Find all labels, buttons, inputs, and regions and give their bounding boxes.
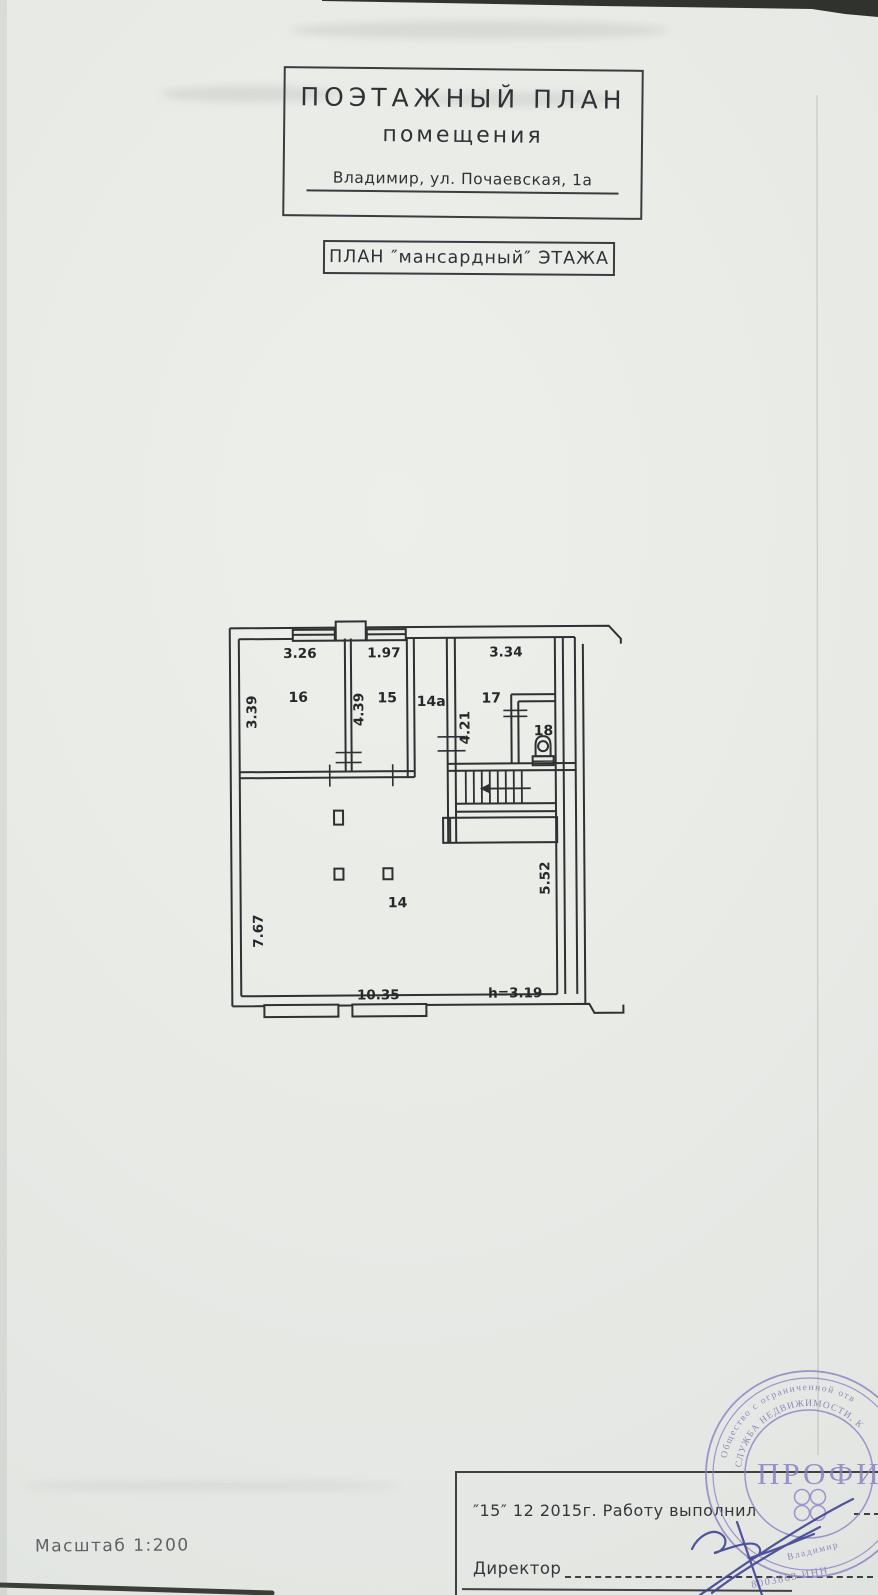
stamp-company-name: ПРОФИ <box>757 1456 878 1491</box>
stamp-and-signature-layer: Общество с ограниченной отв СЛУЖБА НЕДВИ… <box>0 0 878 1595</box>
stamp-city-text: Владимир <box>786 1540 840 1563</box>
stamp-number-text: 8003863 ИНН <box>750 1565 829 1591</box>
company-stamp: Общество с ограниченной отв СЛУЖБА НЕДВИ… <box>706 1371 878 1591</box>
scanned-floorplan-page: 3.26 1.97 3.34 16 15 14а 17 18 14 10.35 … <box>0 0 878 1595</box>
